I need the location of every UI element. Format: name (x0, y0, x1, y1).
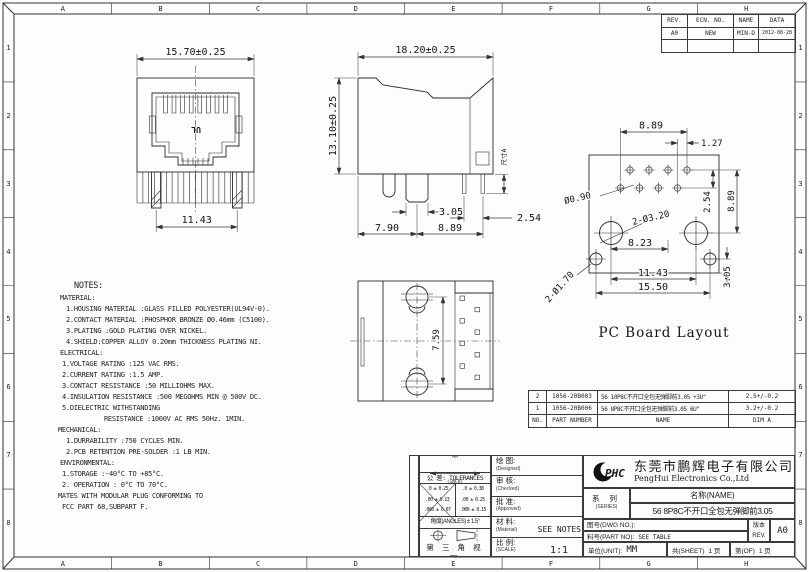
zone-row-label: 1 (3, 14, 14, 82)
dim-front-width: 15.70±0.25 (165, 47, 225, 58)
part-header-cell: NO. (528, 414, 546, 426)
zone-col-label: A (14, 558, 112, 569)
tolerance-value: .0 ± 0.38 (456, 484, 491, 495)
notes-line: ELECTRICAL: (58, 348, 308, 359)
notes-block: NOTES: MATERIAL: 1.HOUSING MATERIAL :GLA… (58, 280, 308, 513)
dim-pin-pitch: 2.54 (517, 213, 541, 224)
scale-value: 1:1 (550, 545, 568, 556)
notes-line: 4.SHIELD:COPPER ALLOY 0.20mm THICKNESS P… (58, 337, 308, 348)
tolerance-value: .000 ± 0.15 (456, 505, 491, 516)
zone-row-label: 4 (3, 218, 14, 286)
name-value-cell: 56 8P8C不开口全包无弹脚前3.05 (630, 503, 795, 519)
zone-band-bottom: A B C D E F G H (14, 558, 795, 569)
part-cell: 1056-20B006 (546, 402, 597, 414)
signoff-row-scale: 比 例: (SCALE) 1:1 (492, 538, 583, 557)
side-view: 18.20±0.25 13.10±0.25 3.05 2.54 7.90 8.8… (328, 45, 541, 238)
zone-row-label: 2 (795, 82, 806, 150)
drawing-sheet: UL 15.70±0.25 11.43 18.20 (0, 0, 809, 572)
top-view: 7.59 (350, 281, 500, 401)
zone-col-label: H (697, 558, 795, 569)
notes-line: 1.DURRABILITY :750 CYCLES MIN. (58, 436, 308, 447)
phc-logo-text: PHC (605, 467, 625, 480)
zone-row-label: 3 (795, 150, 806, 218)
zone-row-label: 2 (3, 82, 14, 150)
zone-row-label: 7 (3, 421, 14, 489)
tolerance-matrix: .0 ± 0.25 .00 ± 0.13 .000 ± 0.07 .0 ± 0.… (420, 484, 490, 517)
of-value: 1 页 (759, 545, 771, 555)
signoff-label-en: (Designed) (496, 466, 583, 472)
notes-line: 3.CONTACT RESISTANCE :50 MILLIOHMS MAX. (58, 381, 308, 392)
sheet-cell: 共(SHEET)1 页 (667, 542, 730, 557)
zone-col-label: F (502, 3, 600, 14)
pin-holes (615, 165, 693, 194)
phc-logo: PHC (592, 460, 634, 484)
parts-table: 2 1056-20B003 56 10P8C不开口全包无弹脚前3.05 +3U"… (528, 390, 796, 428)
rev-cell: MIN-D (733, 27, 758, 40)
notes-line: 1.HOUSING MATERIAL :GLASS FILLED POLYEST… (58, 304, 308, 315)
unit-label: 单位(UNIT): (588, 545, 622, 555)
name-header-cell: 名称(NAME) (630, 488, 795, 503)
dim-post-span: 11.43 (638, 268, 668, 279)
zone-col-label: B (112, 3, 210, 14)
unit-cell: 单位(UNIT):MM (583, 542, 667, 557)
notes-line: 2. OPERATION : 0°C TO 70°C. (58, 480, 308, 491)
front-view: UL 15.70±0.25 11.43 (137, 47, 254, 232)
part-cell: 2.5+/-0.2 (728, 390, 795, 402)
tolerance-value: .00 ± 0.25 (456, 495, 491, 506)
tolerance-col-inch: .0 ± 0.38 .00 ± 0.25 .000 ± 0.15 (456, 484, 491, 516)
pc-board-layout-view: 8.89 1.27 Ø0.90 2-Ø3.20 8.23 11.43 15.50… (543, 121, 741, 342)
notes-line: ENVIRONMENTAL: (58, 458, 308, 469)
zone-row-label: 4 (795, 218, 806, 286)
zone-col-label: B (112, 558, 210, 569)
part-header-cell: DIM A (728, 414, 795, 426)
zone-row-label: 5 (3, 286, 14, 354)
dim-col-span: 8.89 (727, 190, 737, 212)
notes-line: RESISTANCE :1000V AC RMS 50Hz. 1MIN. (58, 414, 308, 425)
double-arrow-icon (426, 471, 484, 476)
dwg-no-cell: 图号(DWG NO.): (583, 519, 748, 531)
rev-label-cell: 版本 REV. (748, 519, 770, 542)
rev-header-cell: ECN. NO. (687, 14, 733, 27)
company-name-en: PengHui Electronics Co.,Ltd (634, 474, 794, 484)
dim-mount-span: 15.50 (638, 282, 668, 293)
board-lock-legs (152, 172, 243, 208)
part-no-label: 料号(PART NO): (587, 534, 634, 541)
zone-row-label: 1 (795, 14, 806, 82)
board-layout-caption: PC Board Layout (598, 325, 729, 341)
zone-col-label: E (405, 3, 503, 14)
series-label-cn: 系 列 (584, 493, 629, 504)
zone-band-right: 1 2 3 4 5 6 7 8 (795, 14, 806, 557)
signoff-label-en: (SCALE) (496, 547, 583, 553)
zone-col-label: D (307, 3, 405, 14)
notes-line: 4.INSULATION RESISTANCE :500 MEGOHMS MIN… (58, 392, 308, 403)
zone-col-label: E (405, 558, 503, 569)
notes-line: MATES WITH MODULAR PLUG CONFORMING TO (58, 491, 308, 502)
unit-mm-label: MM (420, 456, 490, 461)
rev-header-cell: REV. (661, 14, 687, 27)
rev-cell (687, 39, 733, 52)
title-block-side-strip (409, 455, 419, 557)
zone-band-top: A B C D E F G H (14, 3, 795, 14)
notes-line: 3.PLATING :GOLD PLATING OVER NICKEL. (58, 326, 308, 337)
part-cell: 1056-20B003 (546, 390, 597, 402)
dim-row-pitch: 2.54 (703, 191, 713, 213)
notes-title: NOTES: (58, 280, 308, 293)
signoff-label-cn: 批 准: (496, 498, 583, 507)
label-mount-hole-dia: 2-Ø1.70 (543, 269, 577, 305)
dim-front-span: 7.90 (375, 223, 399, 234)
signoff-row-checked: 审 核: (Checked) (492, 476, 583, 496)
dim-row-offset: 1.27 (701, 139, 723, 149)
company-name-cn: 东莞市鹏辉电子有限公司 (634, 459, 794, 474)
signoff-label-cn: 审 核: (496, 477, 583, 486)
zone-row-label: 8 (795, 489, 806, 557)
material-value: SEE NOTES (538, 525, 581, 534)
notes-line: 1.VOLTAGE RATING :125 VAC RMS. (58, 359, 308, 370)
rev-cell: NEW (687, 27, 733, 40)
rev-cell (733, 39, 758, 52)
part-cell: 3.2+/-0.2 (728, 402, 795, 414)
dwg-no-label: 图号(DWG NO.): (587, 522, 635, 529)
signoff-row-designed: 绘 图: (Designed) (492, 456, 583, 476)
rev-cell: A0 (661, 27, 687, 40)
dim-a-label: 尺寸A (499, 148, 508, 165)
title-block: MM (INCH) 公 差: TOLERANCES .0 ± 0.25 .00 … (409, 455, 795, 557)
sheet-label: 共(SHEET) (672, 545, 705, 555)
rev-header-cell: NAME (733, 14, 758, 27)
series-cell: 系 列 (SERIES) (583, 488, 630, 519)
rev-header-cell: DATA (758, 14, 795, 27)
zone-col-label: A (14, 3, 112, 14)
rev-label-cn: 版本 (749, 521, 769, 531)
notes-line: MECHANICAL: (58, 425, 308, 436)
dim-edge-offset: 3.05 (723, 266, 733, 288)
tolerance-box: MM (INCH) 公 差: TOLERANCES .0 ± 0.25 .00 … (419, 455, 491, 557)
signoff-label-cn: 比 例: (496, 539, 583, 548)
sheet-value: 1 页 (709, 545, 721, 555)
notes-line: 2.CONTACT MATERIAL :PHOSPHOR BRONZE Ø0.4… (58, 315, 308, 326)
dim-top-post-span: 7.59 (432, 329, 442, 351)
part-cell: 1 (528, 402, 546, 414)
zone-row-label: 7 (795, 421, 806, 489)
notes-line: 1.STORAGE :-40°C TO +85°C. (58, 469, 308, 480)
notes-line: 2.CURRENT RATING :1.5 AMP. (58, 370, 308, 381)
zone-col-label: F (502, 558, 600, 569)
of-cell: 第(OF)1 页 (730, 542, 795, 557)
zone-row-label: 8 (3, 489, 14, 557)
ul-mark: UL (191, 125, 201, 134)
part-cell: 2 (528, 390, 546, 402)
signoff-label-en: (Approved) (496, 506, 583, 512)
part-header-cell: NAME (597, 414, 728, 426)
zone-band-left: 1 2 3 4 5 6 7 8 (3, 14, 14, 557)
rev-value-cell: A0 (770, 519, 795, 542)
dim-post-offset: 8.23 (628, 238, 652, 249)
notes-line: FCC PART 68,SUBPART F. (58, 502, 308, 513)
of-label: 第(OF) (735, 545, 755, 555)
dim-board-pin-span: 8.89 (639, 121, 663, 132)
company-cell: PHC 东莞市鹏辉电子有限公司 PengHui Electronics Co.,… (583, 455, 795, 488)
zone-row-label: 3 (3, 150, 14, 218)
label-pin-hole-dia: Ø0.90 (563, 190, 592, 207)
dim-side-width: 18.20±0.25 (395, 45, 455, 56)
rev-cell (758, 39, 795, 52)
dim-peg-width: 3.05 (439, 207, 463, 218)
notes-line: 2.PCB RETENTION PRE-SOLDER :1 LB MIN. (58, 447, 308, 458)
crossed-out-icon (420, 484, 455, 521)
part-header-cell: PART NUMBER (546, 414, 597, 426)
signoff-label-en: (Checked) (496, 486, 583, 492)
signoff-label-cn: 绘 图: (496, 457, 583, 466)
zone-col-label: G (600, 3, 698, 14)
label-post-hole-dia: 2-Ø3.20 (631, 209, 670, 228)
zone-col-label: G (600, 558, 698, 569)
zone-col-label: C (209, 3, 307, 14)
series-label-en: (SERIES) (584, 504, 629, 510)
mount-holes (586, 249, 720, 269)
signoff-row-approved: 批 准: (Approved) (492, 497, 583, 517)
third-angle-label: 第 三 角 视 图 (420, 542, 490, 556)
zone-col-label: H (697, 3, 795, 14)
rev-cell: 2012-08-28 (758, 27, 795, 40)
zone-col-label: C (209, 558, 307, 569)
signoff-column: 绘 图: (Designed) 审 核: (Checked) 批 准: (App… (491, 455, 583, 557)
zone-row-label: 6 (795, 353, 806, 421)
dim-front-pin-span: 11.43 (182, 215, 212, 226)
zone-col-label: D (307, 558, 405, 569)
signoff-row-material: 材 料: (Material) SEE NOTES (492, 517, 583, 537)
third-angle-projection-icon (429, 529, 481, 542)
unit-value: MM (626, 545, 637, 555)
part-cell: 56 10P8C不开口全包无弹脚前3.05 +3U" (597, 390, 728, 402)
tolerance-col-mm: .0 ± 0.25 .00 ± 0.13 .000 ± 0.07 (420, 484, 456, 516)
part-no-cell: 料号(PART NO):SEE TABLE (583, 531, 748, 542)
projection-symbols (420, 529, 490, 542)
solder-pins (460, 296, 480, 380)
notes-line: 5.DIELECTRIC WITHSTANDING (58, 403, 308, 414)
revision-table: REV. ECN. NO. NAME DATA A0 NEW MIN-D 201… (661, 14, 796, 53)
rev-label-en: REV. (749, 531, 769, 541)
unit-arrow-cell: MM (INCH) (420, 456, 490, 473)
part-no-value: SEE TABLE (638, 534, 671, 541)
dim-side-height: 13.10±0.25 (328, 96, 339, 156)
zone-row-label: 5 (795, 286, 806, 354)
dim-rear-span: 8.89 (438, 223, 462, 234)
part-cell: 56 8P8C不开口全包无弹脚前3.05 6U" (597, 402, 728, 414)
rev-cell (661, 39, 687, 52)
zone-row-label: 6 (3, 353, 14, 421)
notes-line: MATERIAL: (58, 293, 308, 304)
